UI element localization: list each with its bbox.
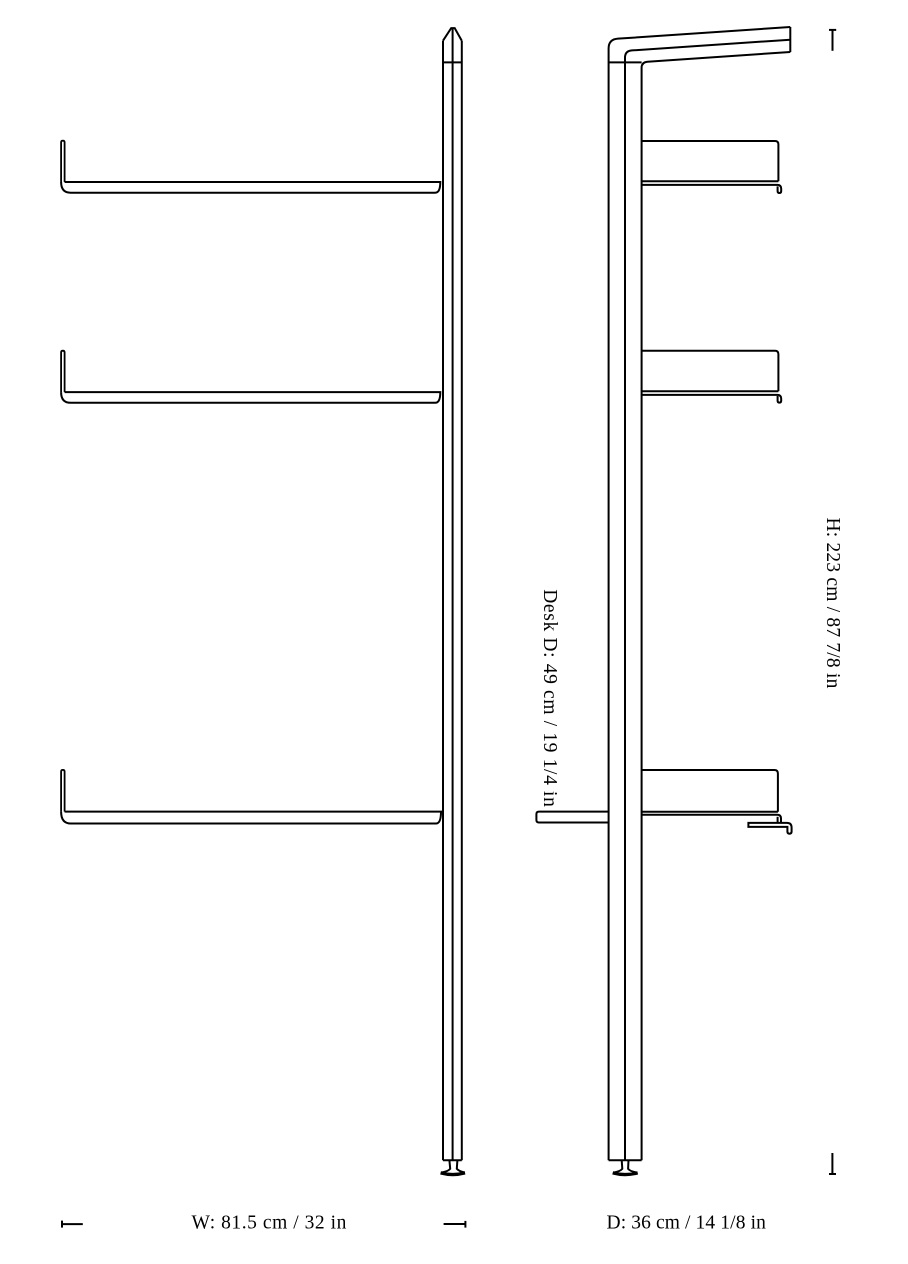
svg-text:W: 81.5 cm / 32 in: W: 81.5 cm / 32 in — [192, 1213, 347, 1234]
svg-text:D: 36 cm / 14 1/8 in: D: 36 cm / 14 1/8 in — [607, 1213, 767, 1234]
svg-text:H: 223 cm / 87 7/8 in: H: 223 cm / 87 7/8 in — [822, 518, 843, 689]
svg-text:Desk D: 49 cm / 19 1/4 in: Desk D: 49 cm / 19 1/4 in — [539, 589, 560, 807]
